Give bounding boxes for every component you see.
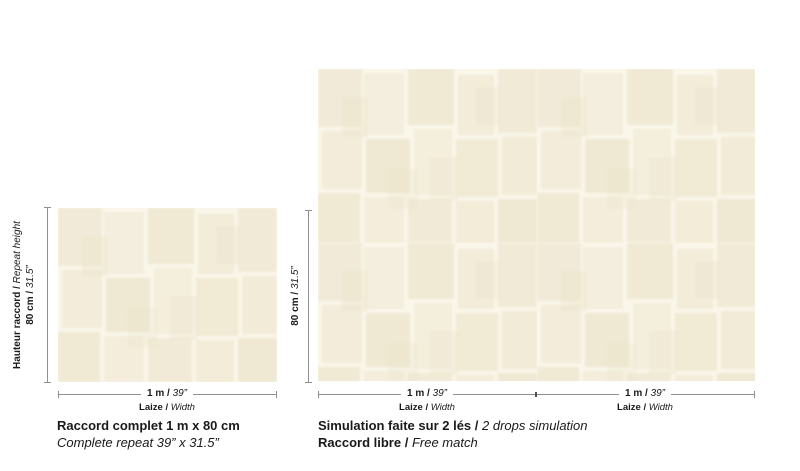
left-width-value-metric: 1 m / bbox=[147, 388, 170, 399]
drop1-width-value-metric: 1 m / bbox=[407, 388, 430, 399]
wallpaper-spec-sheet: Hauteur raccord / Repeat height 80 cm / … bbox=[0, 0, 800, 471]
right-repeat-height-value-imperial: 31.5” bbox=[290, 266, 301, 289]
drop2-width-value: 1 m / 39” bbox=[619, 388, 671, 400]
left-width-value-imperial: 39” bbox=[173, 388, 187, 399]
right-caption-line2: Raccord libre / Free match bbox=[318, 435, 588, 452]
drop1-width-value-imperial: 39” bbox=[433, 388, 447, 399]
left-width-dimension-tick-left bbox=[58, 391, 59, 398]
left-width-label-en: Width bbox=[171, 402, 195, 413]
drop1-width-label-en: Width bbox=[431, 402, 455, 413]
right-height-dimension-tick-bottom bbox=[305, 382, 312, 383]
left-repeat-height-value-metric: 80 cm / bbox=[25, 291, 36, 325]
left-caption: Raccord complet 1 m x 80 cm Complete rep… bbox=[57, 418, 240, 451]
wallpaper-swatch-single-repeat bbox=[58, 208, 277, 382]
right-height-dimension-line bbox=[308, 210, 309, 383]
drops-width-tick-left bbox=[318, 391, 319, 398]
left-repeat-height-label-en: Repeat height bbox=[12, 221, 23, 283]
left-height-dimension-line bbox=[47, 207, 48, 383]
right-repeat-height-value-line: 80 cm / 31.5” bbox=[289, 236, 302, 356]
right-repeat-height-value-metric: 80 cm / bbox=[290, 292, 301, 326]
right-caption-line1: Simulation faite sur 2 lés / 2 drops sim… bbox=[318, 418, 588, 435]
drop1-width-value: 1 m / 39” bbox=[401, 388, 453, 400]
left-repeat-height-label-line1: Hauteur raccord / Repeat height bbox=[11, 200, 24, 390]
left-width-label-fr: Laize / bbox=[139, 402, 168, 413]
left-caption-line1: Raccord complet 1 m x 80 cm bbox=[57, 418, 240, 435]
drops-width-tick-right bbox=[754, 391, 755, 398]
left-width-value: 1 m / 39” bbox=[141, 388, 193, 400]
left-caption-line2: Complete repeat 39” x 31.5” bbox=[57, 435, 240, 452]
drop2-width-label-en: Width bbox=[649, 402, 673, 413]
drops-width-tick-middle bbox=[535, 392, 537, 397]
drop2-width-label-fr: Laize / bbox=[617, 402, 646, 413]
left-width-dimension-tick-right bbox=[276, 391, 277, 398]
right-caption: Simulation faite sur 2 lés / 2 drops sim… bbox=[318, 418, 588, 451]
left-height-dimension-tick-top bbox=[44, 207, 51, 208]
left-repeat-height-value-imperial: 31.5” bbox=[25, 265, 36, 288]
left-width-label: Laize / Width bbox=[139, 402, 195, 413]
left-height-dimension-tick-bottom bbox=[44, 382, 51, 383]
drop2-width-label: Laize / Width bbox=[617, 402, 673, 413]
drop2-width-value-imperial: 39” bbox=[651, 388, 665, 399]
right-caption-line1-en: 2 drops simulation bbox=[482, 418, 588, 433]
drop2-width-value-metric: 1 m / bbox=[625, 388, 648, 399]
right-repeat-height-label: 80 cm / 31.5” bbox=[289, 236, 303, 356]
drop1-width-label-fr: Laize / bbox=[399, 402, 428, 413]
wallpaper-simulation-two-drops bbox=[318, 69, 755, 381]
right-caption-line1-fr: Simulation faite sur 2 lés / bbox=[318, 418, 478, 433]
right-height-dimension-tick-top bbox=[305, 210, 312, 211]
right-caption-line2-en: Free match bbox=[412, 435, 478, 450]
left-repeat-height-label: Hauteur raccord / Repeat height 80 cm / … bbox=[11, 200, 39, 390]
drop1-width-label: Laize / Width bbox=[399, 402, 455, 413]
right-caption-line2-fr: Raccord libre / bbox=[318, 435, 408, 450]
left-repeat-height-label-fr: Hauteur raccord / bbox=[12, 286, 23, 369]
left-repeat-height-value-line: 80 cm / 31.5” bbox=[24, 200, 37, 390]
